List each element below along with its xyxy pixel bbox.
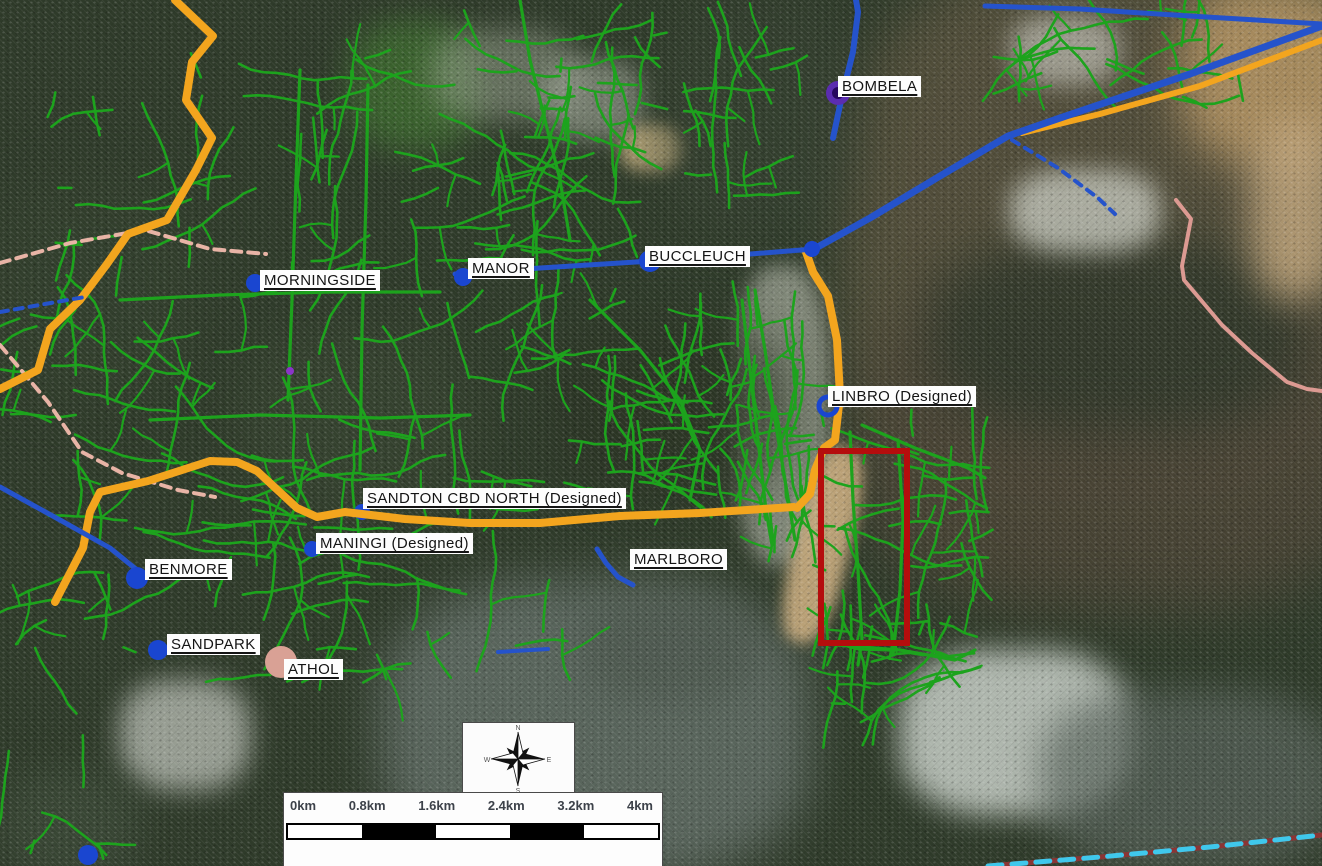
compass-letter-n: N (515, 725, 520, 732)
scale-tick-labels: 0km0.8km1.6km2.4km3.2km4km (284, 793, 662, 813)
map-label: BUCCLEUCH (645, 246, 750, 267)
compass-rose-icon: N E S W (463, 723, 574, 793)
scale-segment (362, 825, 436, 838)
compass-box: N E S W (462, 722, 575, 794)
map-label: BENMORE (145, 559, 232, 580)
map-label: MORNINGSIDE (260, 270, 380, 291)
highlight-rectangle (818, 448, 910, 646)
scale-tick-label: 4km (627, 798, 653, 813)
scale-tick-label: 3.2km (557, 798, 594, 813)
map-label: MANINGI (Designed) (316, 533, 473, 554)
map-label: ATHOL (284, 659, 343, 680)
map-label: SANDPARK (167, 634, 260, 655)
map-label: SANDTON CBD NORTH (Designed) (363, 488, 626, 509)
map-label: MANOR (468, 258, 534, 279)
scale-bar: 0km0.8km1.6km2.4km3.2km4km (283, 792, 663, 866)
scale-segment (510, 825, 584, 838)
map-label: MARLBORO (630, 549, 727, 570)
scale-bar-segments (286, 823, 660, 840)
compass-letter-w: W (484, 757, 491, 764)
scale-tick-label: 2.4km (488, 798, 525, 813)
map-labels-layer: BOMBELAMORNINGSIDEMANORBUCCLEUCHLINBRO (… (0, 0, 1322, 866)
compass-letter-e: E (547, 757, 552, 764)
scale-tick-label: 0.8km (349, 798, 386, 813)
map-canvas[interactable]: BOMBELAMORNINGSIDEMANORBUCCLEUCHLINBRO (… (0, 0, 1322, 866)
scale-tick-label: 1.6km (418, 798, 455, 813)
scale-segment (288, 825, 362, 838)
map-label: LINBRO (Designed) (828, 386, 976, 407)
scale-segment (584, 825, 658, 838)
scale-tick-label: 0km (290, 798, 316, 813)
map-label: BOMBELA (838, 76, 921, 97)
scale-segment (436, 825, 510, 838)
